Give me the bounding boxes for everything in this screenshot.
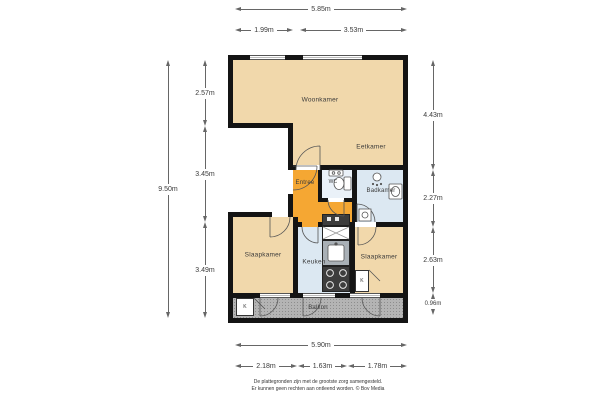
- label-keuken: Keuken: [302, 259, 325, 266]
- balcony-door-threshold: [350, 293, 380, 298]
- wall-segment: [228, 212, 233, 323]
- dim-right-c: 2.63m: [416, 227, 450, 293]
- dim-left-a: 2.57m: [188, 60, 222, 126]
- wall-segment: [318, 170, 322, 200]
- wall-segment: [403, 55, 408, 323]
- dim-top-total: 5.85m: [235, 5, 407, 13]
- kitchen-stove: [322, 266, 350, 292]
- floorplan-canvas: Woonkamer Eetkamer Entree WC Badkamer Sl…: [0, 0, 600, 400]
- label-wc: WC: [329, 179, 338, 185]
- wall-segment: [288, 194, 293, 217]
- room-eetkamer: [293, 125, 403, 165]
- wall-segment: [228, 55, 233, 128]
- dim-bottom-total: 5.90m: [235, 341, 407, 349]
- label-closet-balcony: K: [243, 304, 247, 310]
- dim-top-a: 1.99m: [235, 26, 293, 34]
- label-slaapkamer-links: Slaapkamer: [245, 252, 282, 259]
- disclaimer-line2: Er kunnen geen rechten aan ontleend word…: [168, 386, 468, 393]
- window: [250, 55, 285, 60]
- balcony-door-threshold: [260, 293, 290, 298]
- disclaimer: De plattegronden zijn met de grootste zo…: [168, 379, 468, 392]
- room-badkamer: [357, 170, 403, 222]
- kitchen-sink-unit: [322, 240, 350, 266]
- dim-left-c: 3.49m: [188, 222, 222, 318]
- label-badkamer: Badkamer: [367, 188, 396, 194]
- label-closet-bedroom: K: [360, 278, 364, 284]
- wall-segment: [320, 165, 408, 170]
- wall-segment: [352, 170, 357, 222]
- wall-segment: [318, 198, 328, 202]
- wall-segment: [228, 212, 272, 217]
- dim-bottom-c: 1.78m: [348, 362, 407, 370]
- dim-right-a: 4.43m: [416, 60, 450, 170]
- dim-left-b: 3.45m: [188, 126, 222, 222]
- wall-segment: [228, 123, 293, 128]
- room-woonkamer: [233, 60, 403, 125]
- label-eetkamer: Eetkamer: [356, 144, 385, 151]
- wall-segment: [298, 222, 302, 227]
- wall-segment: [335, 293, 350, 298]
- wall-segment: [380, 293, 408, 298]
- wall-segment: [288, 165, 296, 170]
- label-slaapkamer-rechts: Slaapkamer: [361, 254, 398, 261]
- label-woonkamer: Woonkamer: [302, 97, 339, 104]
- label-entree: Entree: [296, 180, 315, 186]
- wall-segment: [288, 123, 293, 166]
- dim-right-b: 2.27m: [416, 170, 450, 227]
- kitchen-vent: [322, 226, 350, 240]
- window: [303, 55, 362, 60]
- wall-segment: [376, 222, 408, 227]
- wall-segment: [228, 318, 408, 323]
- kitchen-appliance: [322, 214, 350, 226]
- dim-bottom-b: 1.63m: [298, 362, 347, 370]
- dim-bottom-a: 2.18m: [235, 362, 297, 370]
- wall-segment: [293, 217, 298, 293]
- wall-segment: [290, 293, 303, 298]
- dim-left-total: 9.50m: [151, 60, 185, 318]
- room-entree-upper: [293, 170, 318, 202]
- label-balkon: Balkon: [308, 305, 328, 311]
- dim-right-d: 0.96m: [416, 293, 450, 319]
- balcony-door-threshold: [303, 293, 335, 298]
- dim-top-b: 3.53m: [300, 26, 407, 34]
